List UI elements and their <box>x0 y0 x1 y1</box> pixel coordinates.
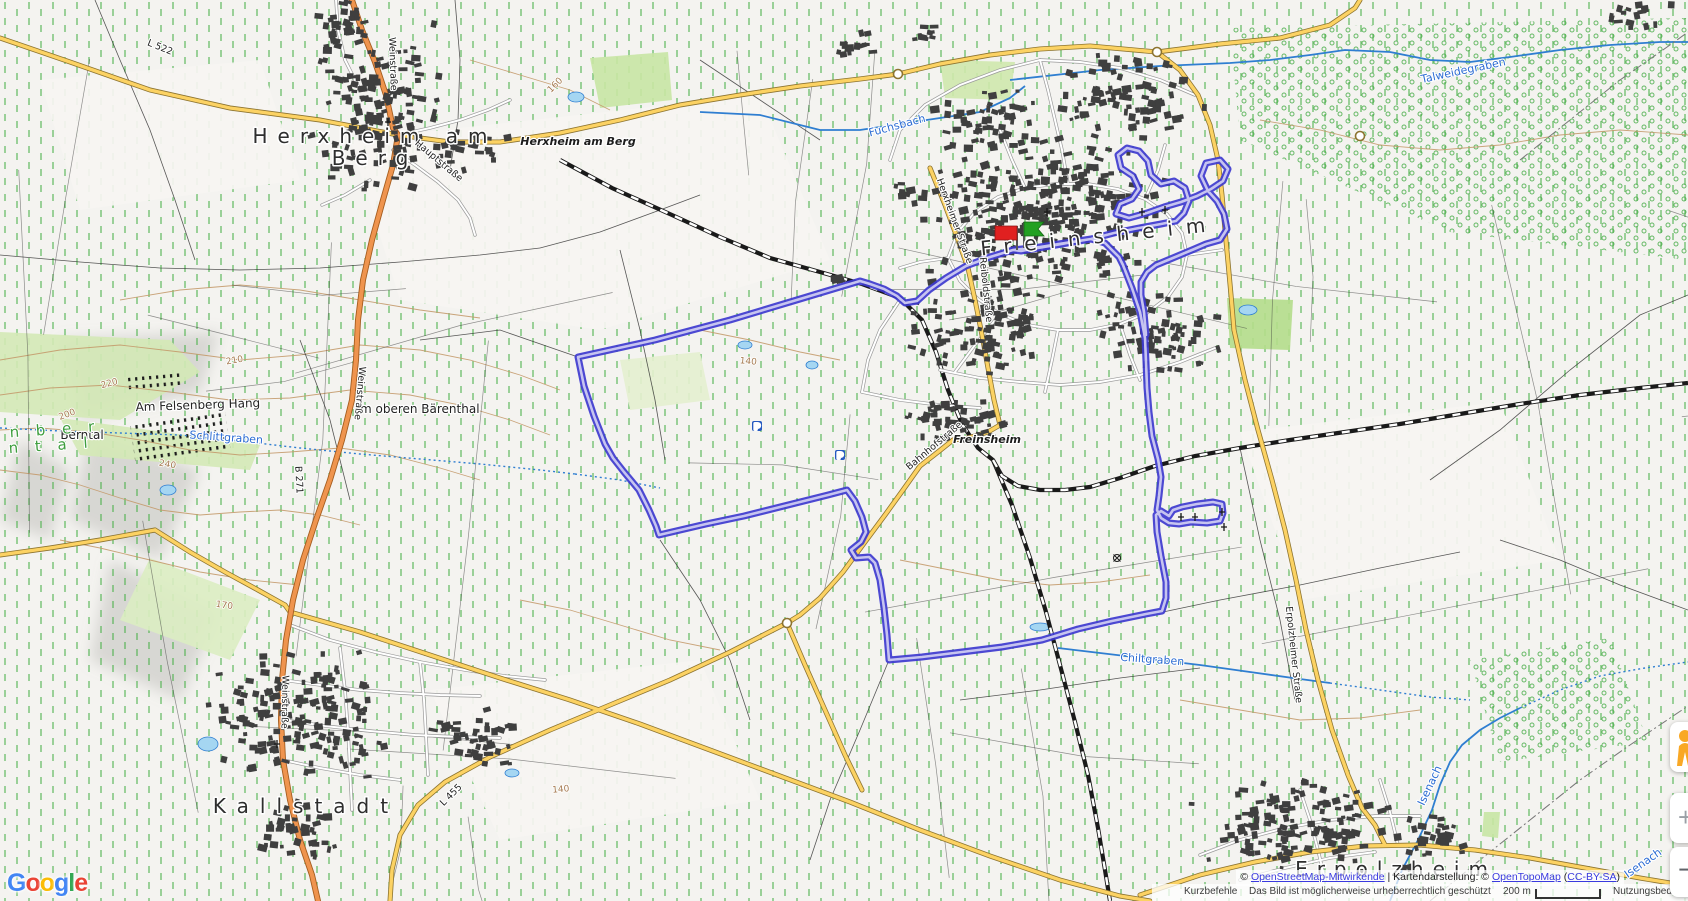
map-viewport[interactable]: PPHerxheim amBergFreinsheimKallstadtErpo… <box>0 0 1688 901</box>
map-attribution: © OpenStreetMap-Mitwirkende | Kartendars… <box>1236 870 1624 886</box>
svg-text:B 271: B 271 <box>292 466 304 494</box>
svg-text:Weinstraße: Weinstraße <box>386 37 399 91</box>
svg-text:Herxheim am: Herxheim am <box>253 124 498 148</box>
google-logo[interactable]: Google <box>7 869 87 898</box>
attr-paren-close: ) <box>1617 871 1621 883</box>
osm-contributors-link[interactable]: OpenStreetMap-Mitwirkende <box>1251 871 1385 883</box>
pegman-button[interactable] <box>1670 722 1688 772</box>
ccbysa-link[interactable]: CC-BY-SA <box>1567 871 1616 883</box>
svg-text:Herxheim am Berg: Herxheim am Berg <box>520 135 636 148</box>
shortcuts-link[interactable]: Kurzbefehle <box>1184 886 1237 897</box>
svg-text:Freinsheim: Freinsheim <box>953 433 1021 446</box>
zoom-in-button[interactable]: + <box>1670 793 1688 843</box>
opentopomap-link[interactable]: OpenTopoMap <box>1492 871 1561 883</box>
pegman-icon <box>1670 722 1688 772</box>
svg-text:P: P <box>754 423 760 432</box>
svg-text:Berg: Berg <box>332 146 419 170</box>
scale-bar <box>1535 889 1601 899</box>
svg-text:Kallstadt: Kallstadt <box>213 794 399 818</box>
topo-map-canvas[interactable]: PPHerxheim amBergFreinsheimKallstadtErpo… <box>0 0 1688 901</box>
zoom-out-button[interactable]: − <box>1670 847 1688 897</box>
google-logo-letter-3: g <box>54 869 68 898</box>
svg-text:140: 140 <box>739 356 757 367</box>
google-logo-letter-5: e <box>74 869 87 898</box>
copyright-notice: Das Bild ist möglicherweise urheberrecht… <box>1249 886 1491 897</box>
google-logo-letter-0: G <box>7 869 25 898</box>
svg-text:P: P <box>837 452 843 461</box>
attr-middle: | Kartendarstellung: © <box>1385 871 1492 883</box>
svg-text:140: 140 <box>552 784 570 795</box>
google-logo-letter-1: o <box>25 869 39 898</box>
google-logo-letter-2: o <box>40 869 54 898</box>
svg-text:Im oberen Bärenthal: Im oberen Bärenthal <box>356 402 479 416</box>
attr-prefix: © <box>1240 871 1251 883</box>
svg-text:Weinstraße: Weinstraße <box>279 675 291 729</box>
scale-text: 200 m <box>1503 886 1531 897</box>
